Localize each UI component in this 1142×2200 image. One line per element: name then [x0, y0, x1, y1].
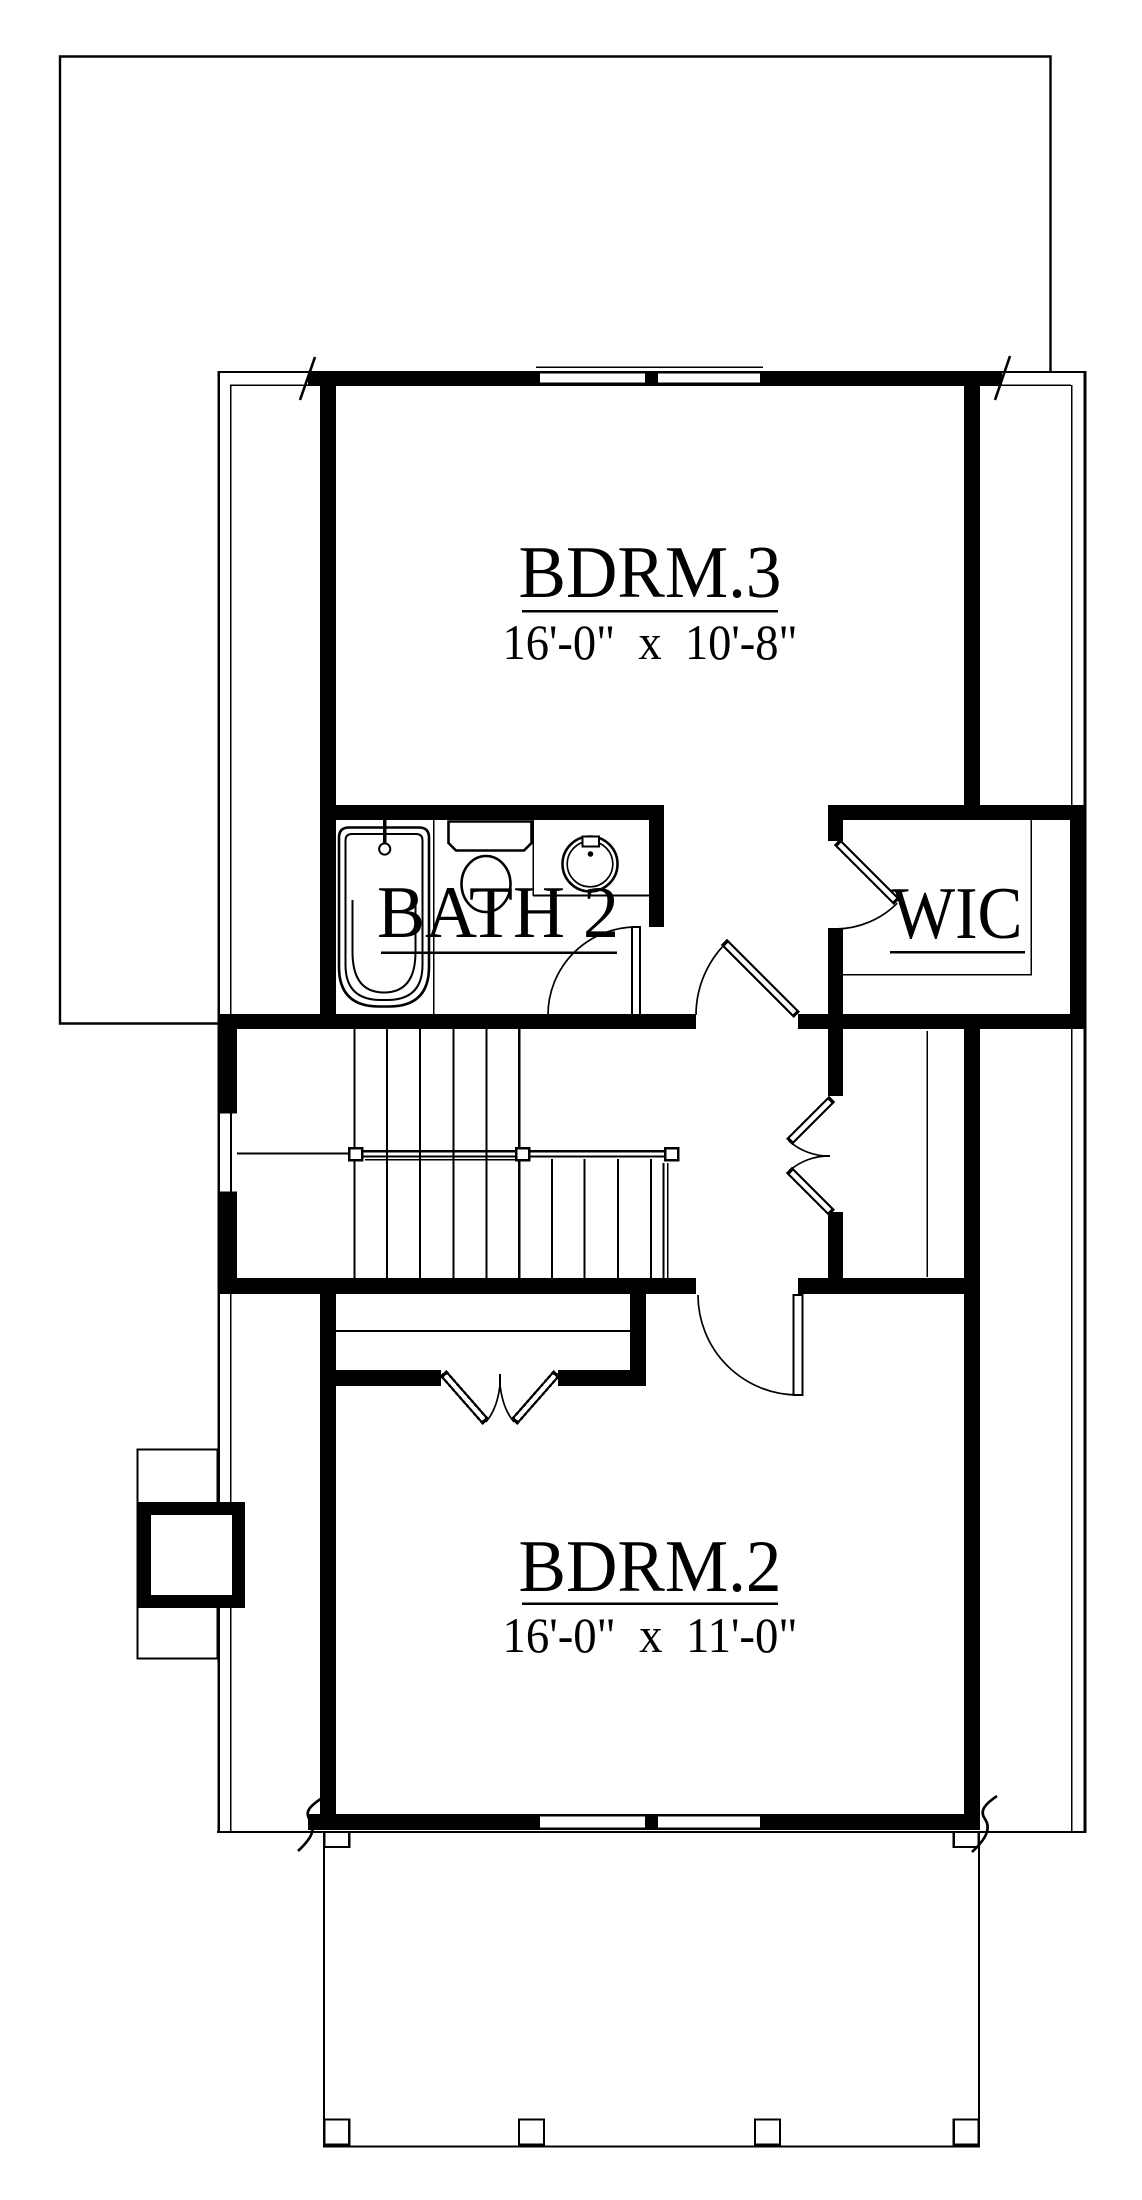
svg-text:WIC: WIC — [892, 873, 1023, 955]
svg-text:16'-0" x 11'-0": 16'-0" x 11'-0" — [503, 1607, 798, 1663]
svg-text:BATH 2: BATH 2 — [377, 872, 619, 954]
svg-text:BDRM.3: BDRM.3 — [519, 532, 782, 614]
svg-text:16'-0" x 10'-8": 16'-0" x 10'-8" — [503, 614, 798, 670]
svg-text:BDRM.2: BDRM.2 — [519, 1526, 782, 1608]
